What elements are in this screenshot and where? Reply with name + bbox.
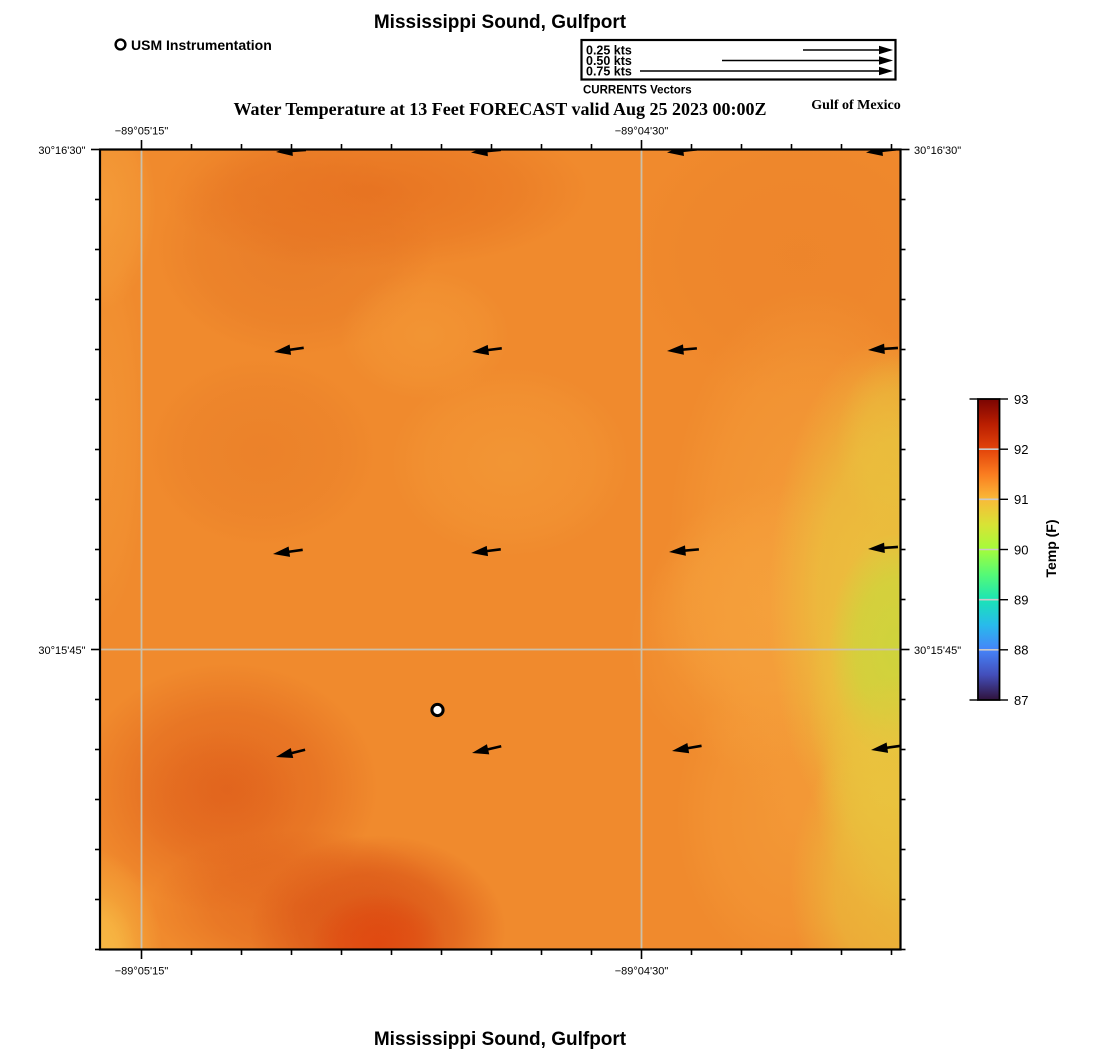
svg-text:91: 91 (1014, 492, 1028, 507)
svg-text:−89°04'30": −89°04'30" (615, 966, 669, 978)
svg-text:Mississippi Sound, Gulfport: Mississippi Sound, Gulfport (374, 1029, 627, 1050)
svg-text:30°16'30": 30°16'30" (38, 145, 85, 157)
svg-text:30°15'45": 30°15'45" (38, 645, 85, 657)
svg-text:90: 90 (1014, 542, 1028, 557)
svg-text:87: 87 (1014, 693, 1028, 708)
svg-text:−89°05'15": −89°05'15" (115, 966, 169, 978)
svg-text:Gulf of Mexico: Gulf of Mexico (811, 98, 900, 113)
svg-text:Temp (F): Temp (F) (1043, 519, 1059, 577)
svg-text:93: 93 (1014, 392, 1028, 407)
svg-text:88: 88 (1014, 643, 1028, 658)
svg-text:Water Temperature at 13 Feet F: Water Temperature at 13 Feet FORECAST va… (234, 99, 767, 119)
svg-text:−89°05'15": −89°05'15" (115, 126, 169, 138)
svg-text:CURRENTS Vectors: CURRENTS Vectors (583, 85, 692, 97)
svg-text:0.75 kts: 0.75 kts (586, 65, 632, 79)
svg-text:89: 89 (1014, 593, 1028, 608)
svg-text:−89°04'30": −89°04'30" (615, 126, 669, 138)
svg-text:30°15'45": 30°15'45" (914, 645, 961, 657)
svg-text:Mississippi Sound, Gulfport: Mississippi Sound, Gulfport (374, 12, 627, 33)
svg-text:30°16'30": 30°16'30" (914, 145, 961, 157)
svg-text:USM Instrumentation: USM Instrumentation (131, 37, 272, 53)
svg-text:92: 92 (1014, 442, 1028, 457)
